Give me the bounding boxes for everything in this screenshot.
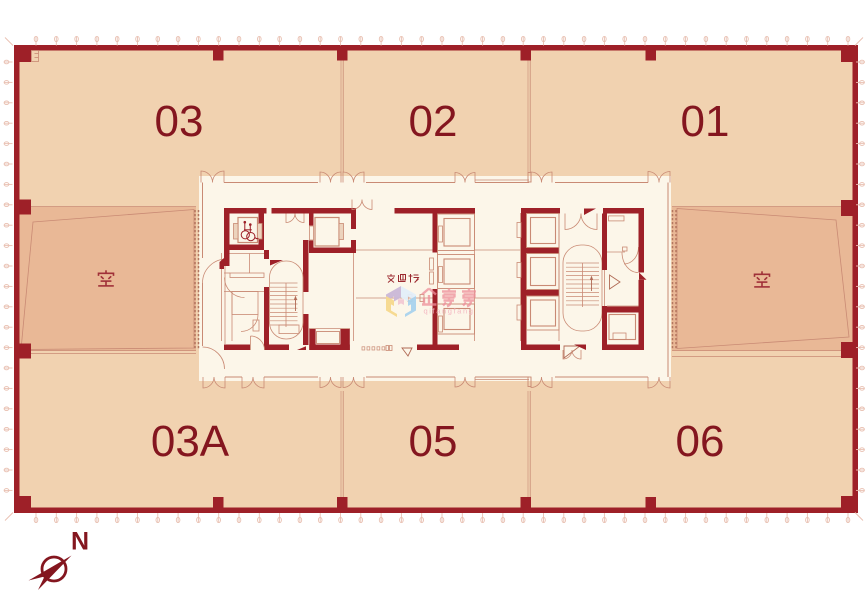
svg-text:N: N xyxy=(71,528,89,556)
svg-text:02: 02 xyxy=(409,97,458,146)
svg-text:06: 06 xyxy=(676,417,725,466)
svg-text:03A: 03A xyxy=(151,417,230,466)
svg-text:01: 01 xyxy=(681,97,730,146)
svg-text:qifangfang: qifangfang xyxy=(423,307,474,316)
svg-text:05: 05 xyxy=(409,417,458,466)
svg-text:03: 03 xyxy=(155,97,204,146)
